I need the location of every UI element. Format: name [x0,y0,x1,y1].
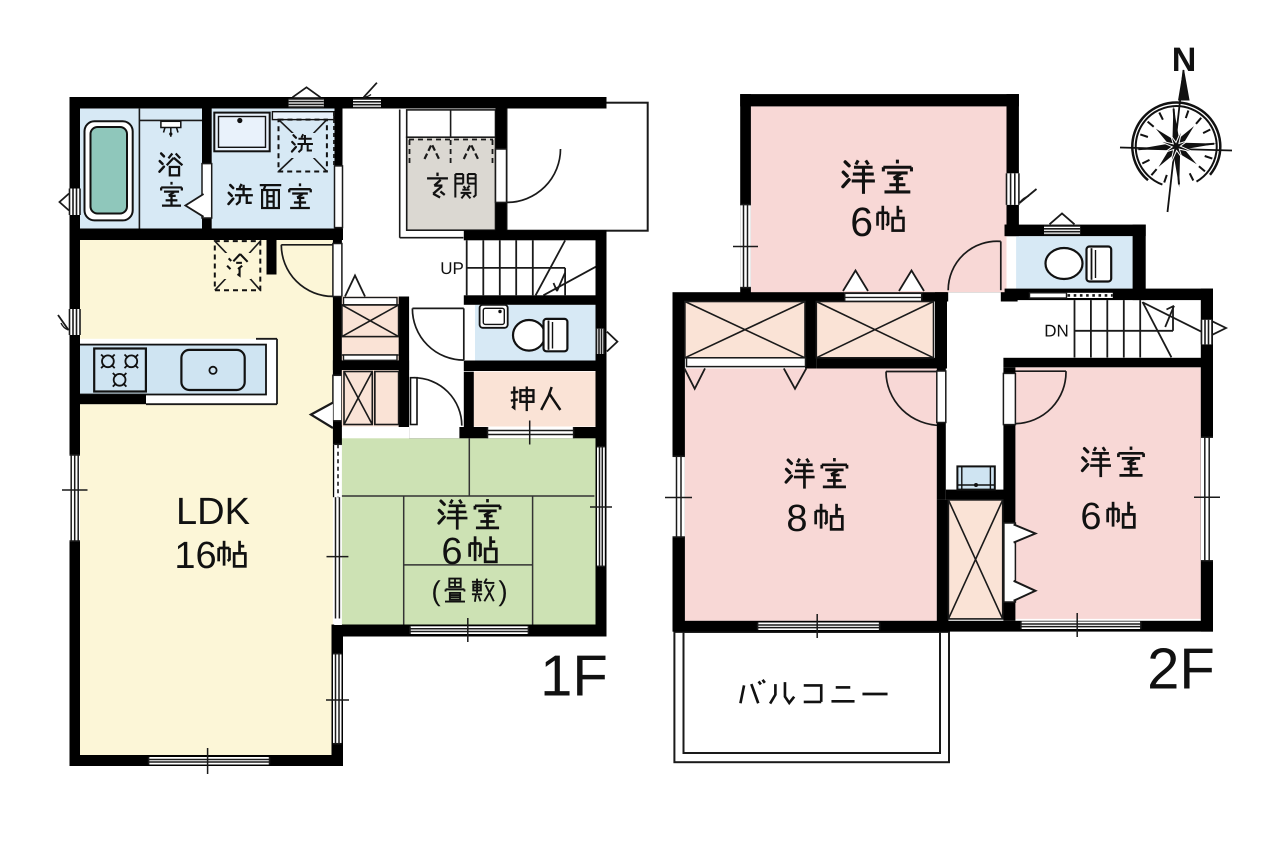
svg-text:16: 16 [174,535,216,577]
svg-text:6: 6 [1080,496,1101,538]
svg-text:DN: DN [1044,322,1069,341]
svg-text:(: ( [431,576,441,607]
svg-text:UP: UP [440,259,464,278]
svg-text:6: 6 [850,199,873,245]
svg-text:): ) [498,576,507,607]
svg-text:6: 6 [441,531,462,573]
svg-text:2F: 2F [1147,637,1215,702]
svg-text:N: N [1172,41,1197,79]
svg-text:LDK: LDK [176,491,250,533]
svg-text:8: 8 [786,498,807,540]
svg-text:1F: 1F [540,644,608,709]
